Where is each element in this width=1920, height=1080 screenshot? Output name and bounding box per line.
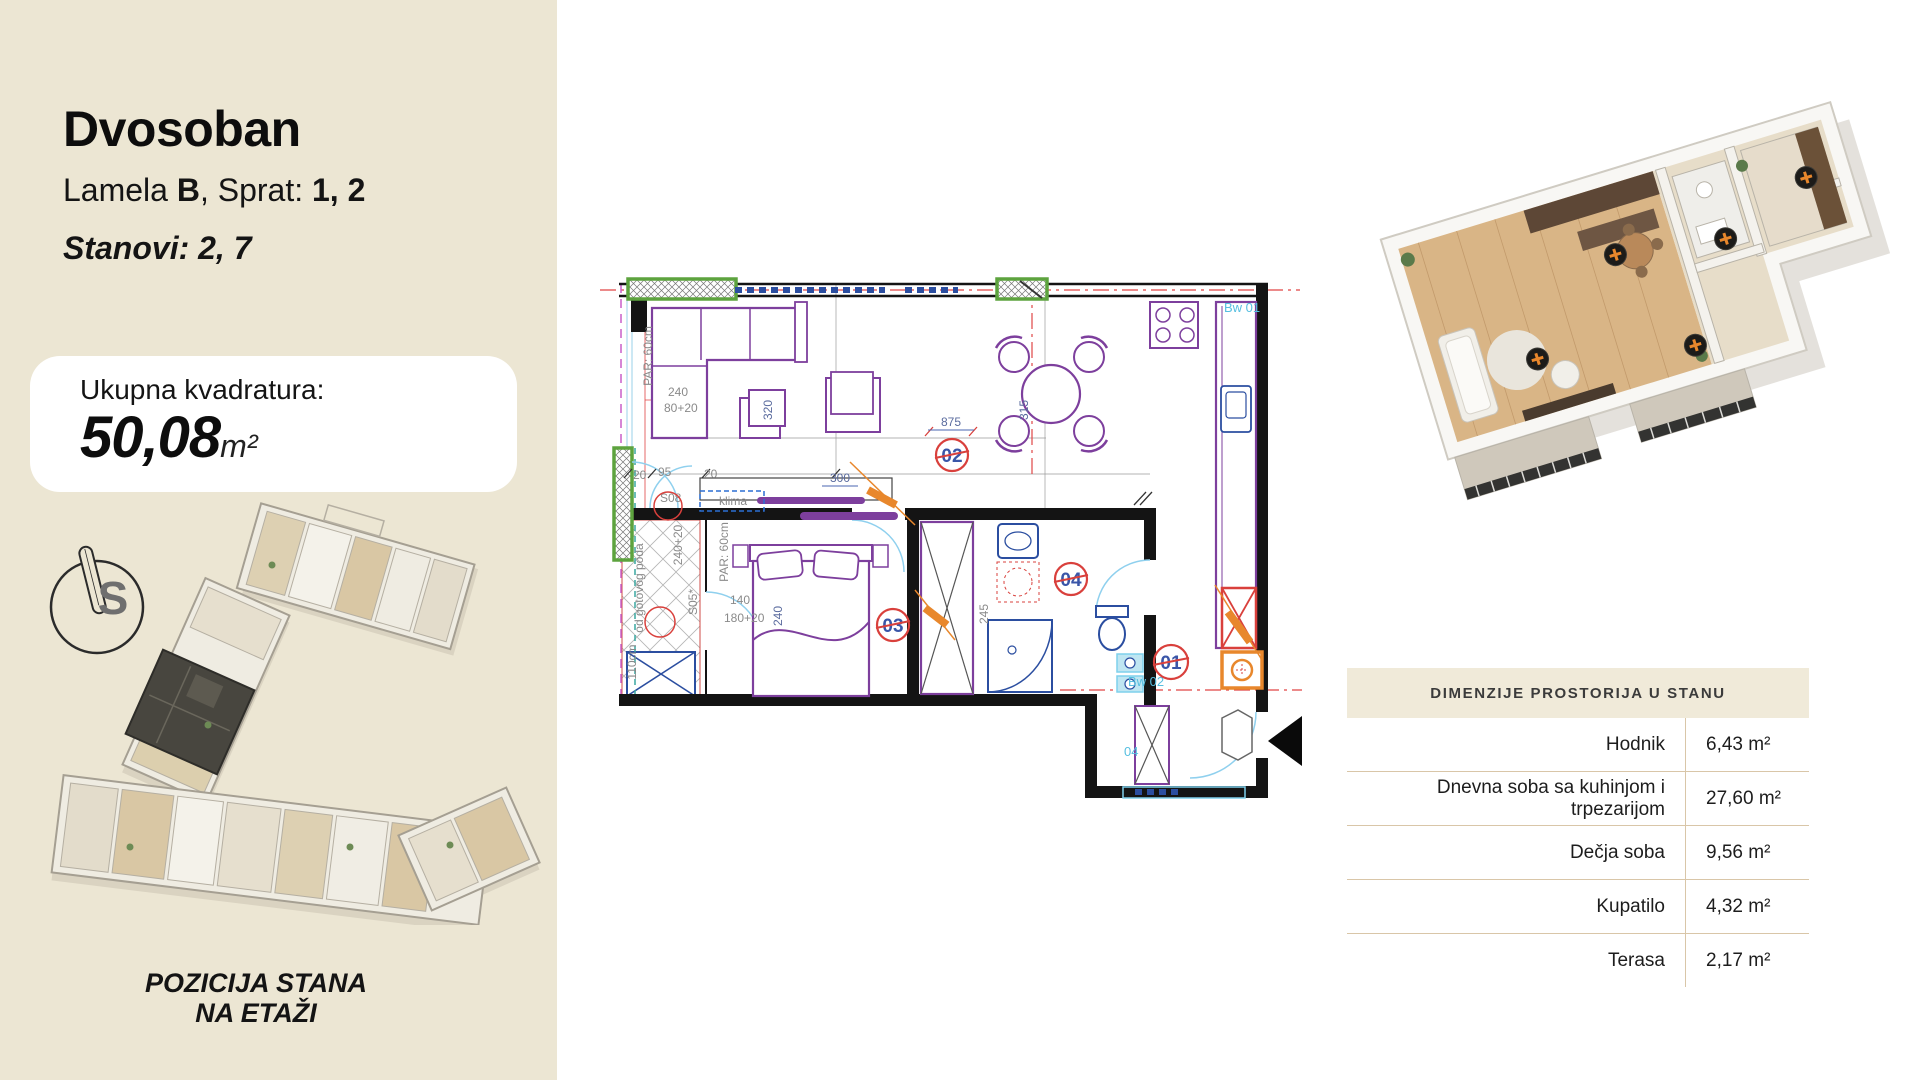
svg-text:20: 20 [633,468,647,482]
room-label-02: 02 [935,439,969,471]
bathroom-sink [998,524,1038,558]
room-area: 4,32 m² [1685,896,1770,918]
table-row: Dnevna soba sa kuhinjom i trpezarijom 27… [1347,771,1809,825]
room-area: 2,17 m² [1685,950,1770,972]
svg-text:Bw 02: Bw 02 [1128,674,1164,689]
armchair [826,372,880,432]
sidebar: Dvosoban Lamela B, Sprat: 1, 2 Stanovi: … [0,0,557,1080]
bathroom-fixtures [988,524,1143,692]
table-row: Kupatilo 4,32 m² [1347,879,1809,933]
svg-text:110cm: 110cm [625,644,639,679]
room-area: 9,56 m² [1685,842,1770,864]
living-room-furniture [652,302,1107,520]
svg-text:Bw 01: Bw 01 [1224,300,1260,315]
shower [988,620,1052,692]
room-name: Dnevna soba sa kuhinjom i trpezarijom [1347,777,1685,821]
room-label-01: 01 [1153,645,1189,679]
toilet [1096,606,1128,650]
dimensions-table-title: DIMENZIJE PROSTORIJA U STANU [1347,668,1809,718]
dimensions-table: DIMENZIJE PROSTORIJA U STANU Hodnik 6,43… [1347,668,1809,987]
total-area-unit: m² [220,428,257,464]
svg-text:180+20: 180+20 [724,611,765,625]
svg-text:04: 04 [1124,744,1138,759]
dimensions-table-rows: Hodnik 6,43 m² Dnevna soba sa kuhinjom i… [1347,718,1809,987]
svg-text:240: 240 [771,606,785,626]
cad-floor-plan: PAR: 60cm 240 80+20 320 300 875 315 20 9… [556,228,1336,828]
svg-text:od gotovog poda: od gotovog poda [632,543,646,633]
svg-text:240+20: 240+20 [671,524,685,565]
svg-text:PAR: 60cm: PAR: 60cm [717,522,731,582]
apartment-sheet-page: Dvosoban Lamela B, Sprat: 1, 2 Stanovi: … [0,0,1920,1080]
apartment-3d-render [1360,55,1920,585]
room-area: 27,60 m² [1685,788,1781,810]
kitchen-sink [1221,386,1251,432]
entrance-arrow-icon [1268,716,1302,766]
room-label-04: 04 [1054,563,1088,595]
svg-text:300: 300 [830,471,850,485]
vent-fixture [1222,652,1262,688]
floor-position-image [10,475,555,925]
stove [1150,302,1198,348]
svg-text:320: 320 [761,400,775,420]
total-area-label: Ukupna kvadratura: [80,374,324,406]
bedroom-furniture [733,522,973,696]
table-divider [1685,718,1686,987]
lamela-sprat-line: Lamela B, Sprat: 1, 2 [63,172,365,209]
svg-text:245: 245 [977,604,991,624]
room-label-03: 03 [876,609,910,641]
svg-text:875: 875 [941,415,961,429]
total-area-value-line: 50,08m² [80,404,257,471]
room-name: Terasa [1347,950,1685,972]
room-area: 6,43 m² [1685,734,1770,756]
svg-text:S05*: S05* [686,589,700,615]
total-area-card: Ukupna kvadratura: 50,08m² [30,356,517,492]
room-name: Dečja soba [1347,842,1685,864]
svg-text:PAR: 60cm: PAR: 60cm [641,326,655,386]
apartment-type-title: Dvosoban [63,100,301,158]
svg-text:140: 140 [730,593,750,607]
svg-text:240: 240 [668,385,688,399]
svg-text:80+20: 80+20 [664,401,698,415]
svg-text:315: 315 [1017,400,1031,420]
svg-text:95: 95 [658,465,672,479]
table-row: Terasa 2,17 m² [1347,933,1809,987]
svg-text:20: 20 [704,467,718,481]
svg-text:klima: klima [719,494,747,508]
table-row: Hodnik 6,43 m² [1347,718,1809,771]
position-caption: POZICIJA STANA NA ETAŽI [40,968,472,1028]
washing-machine [997,562,1039,602]
door-leaf-detail [1222,710,1252,760]
total-area-value: 50,08 [80,405,220,470]
hall-wardrobe [1135,706,1169,784]
stanovi-line: Stanovi: 2, 7 [63,230,252,267]
table-row: Dečja soba 9,56 m² [1347,825,1809,879]
room-name: Hodnik [1347,734,1685,756]
room-name: Kupatilo [1347,896,1685,918]
dining-set [996,337,1107,452]
